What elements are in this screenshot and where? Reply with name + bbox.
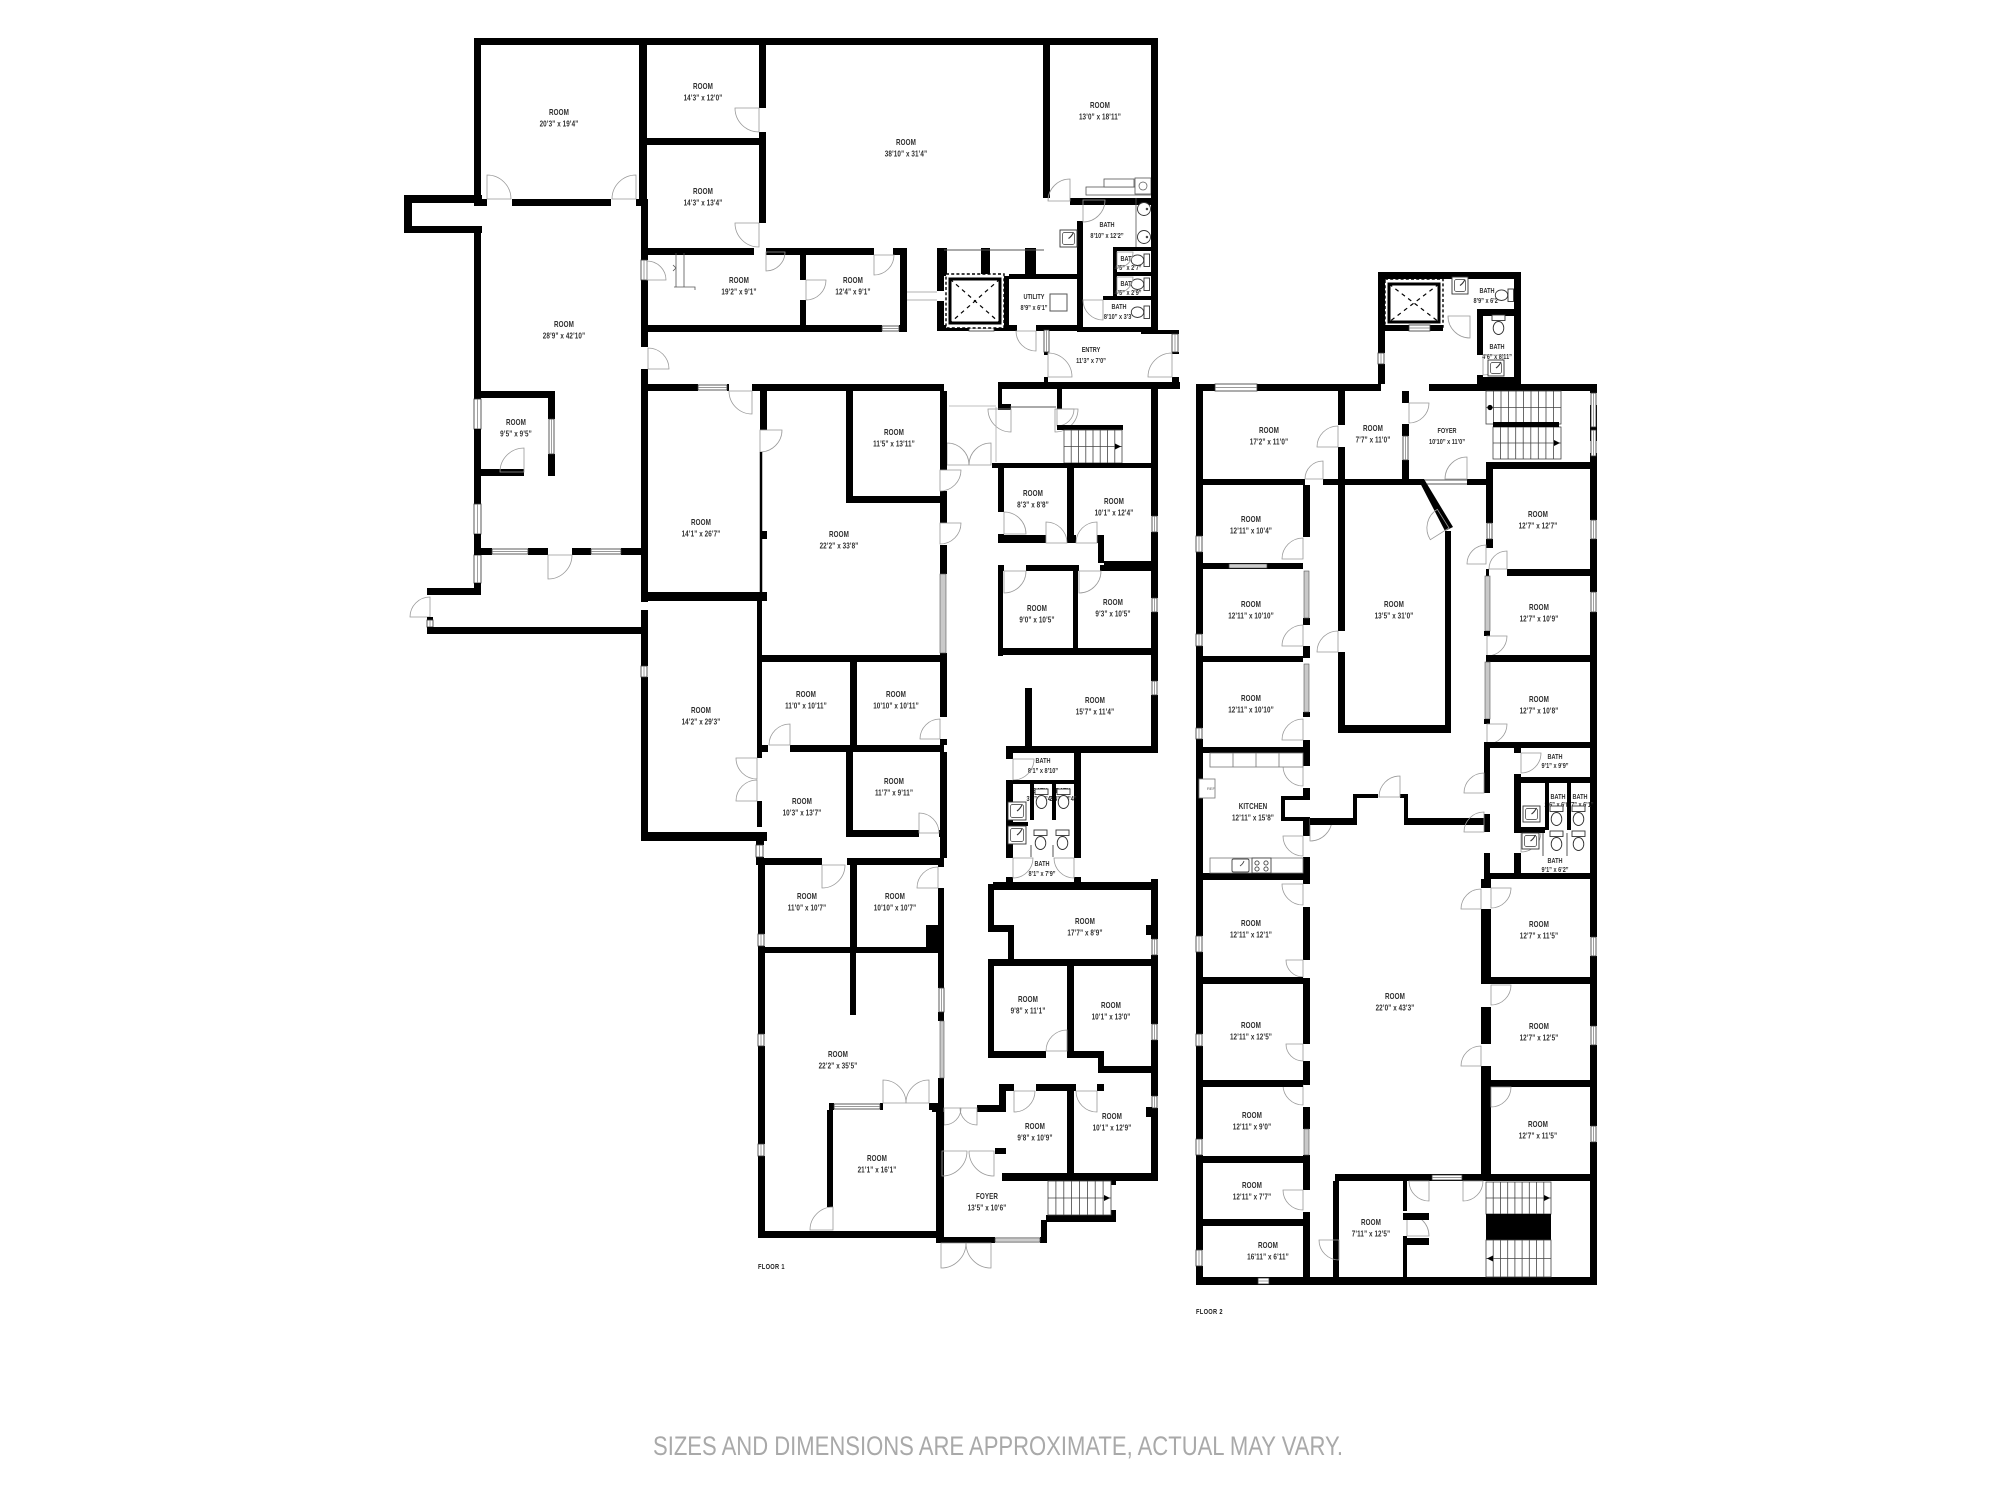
svg-text:ROOM: ROOM	[506, 417, 526, 427]
svg-text:ROOM: ROOM	[693, 186, 713, 196]
svg-text:ROOM: ROOM	[1027, 603, 1047, 613]
svg-text:16’11” x 6’11”: 16’11” x 6’11”	[1247, 1252, 1289, 1262]
svg-text:17’7” x 8’9”: 17’7” x 8’9”	[1067, 928, 1102, 938]
svg-text:ROOM: ROOM	[828, 1049, 848, 1059]
svg-text:11’0” x 10’7”: 11’0” x 10’7”	[788, 903, 827, 913]
svg-text:SIZES AND DIMENSIONS ARE APPRO: SIZES AND DIMENSIONS ARE APPROXIMATE, AC…	[653, 1431, 1343, 1461]
svg-text:BATH: BATH	[1548, 857, 1563, 865]
svg-text:13’5” x 10’6”: 13’5” x 10’6”	[968, 1203, 1007, 1213]
svg-text:ROOM: ROOM	[1241, 918, 1261, 928]
svg-text:14’1” x 26’7”: 14’1” x 26’7”	[682, 529, 721, 539]
svg-text:12’7” x 10’9”: 12’7” x 10’9”	[1520, 614, 1559, 624]
svg-text:38’10” x 31’4”: 38’10” x 31’4”	[885, 149, 928, 159]
svg-text:9’3” x 10’5”: 9’3” x 10’5”	[1095, 609, 1130, 619]
svg-text:ROOM: ROOM	[1385, 991, 1405, 1001]
svg-text:ROOM: ROOM	[1025, 1121, 1045, 1131]
svg-text:17’2” x 11’0”: 17’2” x 11’0”	[1250, 437, 1289, 447]
svg-text:BATH: BATH	[1548, 753, 1563, 761]
svg-text:12’11” x 10’4”: 12’11” x 10’4”	[1230, 526, 1272, 536]
svg-text:ROOM: ROOM	[1529, 694, 1549, 704]
svg-text:ROOM: ROOM	[1241, 693, 1261, 703]
svg-text:13’0” x 18’11”: 13’0” x 18’11”	[1079, 112, 1121, 122]
svg-text:12’7” x 11’5”: 12’7” x 11’5”	[1520, 931, 1559, 941]
svg-text:ROOM: ROOM	[554, 319, 574, 329]
svg-text:12’11” x 12’1”: 12’11” x 12’1”	[1230, 930, 1272, 940]
svg-text:10’10” x 11’0”: 10’10” x 11’0”	[1429, 438, 1465, 446]
svg-text:ROOM: ROOM	[693, 81, 713, 91]
svg-text:BATH: BATH	[1036, 757, 1051, 765]
svg-text:ROOM: ROOM	[1242, 1110, 1262, 1120]
svg-text:12’7” x 11’5”: 12’7” x 11’5”	[1519, 1131, 1558, 1141]
svg-text:9’1” x 9’9”: 9’1” x 9’9”	[1541, 762, 1568, 770]
svg-text:10’3” x 13’7”: 10’3” x 13’7”	[783, 808, 822, 818]
svg-text:ROOM: ROOM	[792, 796, 812, 806]
svg-text:12’7” x 12’7”: 12’7” x 12’7”	[1519, 521, 1558, 531]
svg-text:BATH: BATH	[1112, 303, 1127, 311]
svg-text:22’2” x 35’5”: 22’2” x 35’5”	[819, 1061, 858, 1071]
svg-text:ROOM: ROOM	[886, 689, 906, 699]
svg-text:10’1” x 12’4”: 10’1” x 12’4”	[1095, 508, 1134, 518]
svg-text:12’11” x 7’7”: 12’11” x 7’7”	[1233, 1192, 1272, 1202]
svg-text:14’2” x 29’3”: 14’2” x 29’3”	[682, 717, 721, 727]
svg-text:ROOM: ROOM	[884, 427, 904, 437]
svg-text:ROOM: ROOM	[549, 107, 569, 117]
svg-text:BATH: BATH	[1490, 343, 1505, 351]
svg-text:UTILITY: UTILITY	[1024, 293, 1045, 301]
svg-text:8’9” x 6’1”: 8’9” x 6’1”	[1020, 304, 1047, 312]
svg-text:FOYER: FOYER	[1437, 427, 1456, 435]
svg-text:ROOM: ROOM	[1529, 919, 1549, 929]
svg-text:ROOM: ROOM	[885, 891, 905, 901]
svg-text:ROOM: ROOM	[1529, 602, 1549, 612]
svg-text:ROOM: ROOM	[1529, 1021, 1549, 1031]
svg-text:ROOM: ROOM	[896, 137, 916, 147]
svg-text:13’5” x 31’0”: 13’5” x 31’0”	[1375, 611, 1414, 621]
svg-text:ROOM: ROOM	[829, 529, 849, 539]
svg-text:9’0” x 10’5”: 9’0” x 10’5”	[1019, 615, 1054, 625]
svg-text:ROOM: ROOM	[691, 705, 711, 715]
svg-text:19’2” x 9’1”: 19’2” x 9’1”	[721, 287, 756, 297]
svg-text:10’1” x 13’0”: 10’1” x 13’0”	[1092, 1012, 1131, 1022]
svg-text:12’4” x 9’1”: 12’4” x 9’1”	[835, 287, 870, 297]
svg-text:ENTRY: ENTRY	[1082, 346, 1101, 354]
svg-text:9’8” x 10’9”: 9’8” x 10’9”	[1017, 1133, 1052, 1143]
svg-text:ROOM: ROOM	[1242, 1180, 1262, 1190]
svg-text:10’10” x 10’7”: 10’10” x 10’7”	[874, 903, 917, 913]
svg-text:FLOOR 1: FLOOR 1	[758, 1263, 785, 1271]
svg-text:FOYER: FOYER	[976, 1191, 999, 1201]
svg-text:ROOM: ROOM	[797, 891, 817, 901]
svg-text:ROOM: ROOM	[1241, 1020, 1261, 1030]
svg-text:ROOM: ROOM	[843, 275, 863, 285]
svg-text:12’7” x 10’8”: 12’7” x 10’8”	[1520, 706, 1559, 716]
svg-text:BATH: BATH	[1551, 793, 1566, 801]
svg-text:ROOM: ROOM	[1018, 994, 1038, 1004]
svg-text:14’3” x 13’4”: 14’3” x 13’4”	[684, 198, 723, 208]
svg-text:BATH: BATH	[1480, 287, 1495, 295]
svg-text:12’7” x 12’5”: 12’7” x 12’5”	[1520, 1033, 1559, 1043]
svg-text:BATH: BATH	[1573, 793, 1588, 801]
svg-text:REF: REF	[1207, 786, 1216, 791]
svg-text:ROOM: ROOM	[1361, 1217, 1381, 1227]
svg-text:28’9” x 42’10”: 28’9” x 42’10”	[543, 331, 586, 341]
svg-text:15’7” x 11’4”: 15’7” x 11’4”	[1076, 707, 1115, 717]
svg-text:ROOM: ROOM	[1085, 695, 1105, 705]
svg-text:ROOM: ROOM	[1241, 514, 1261, 524]
svg-text:BATH: BATH	[1100, 221, 1115, 229]
svg-text:12’11” x 10’10”: 12’11” x 10’10”	[1228, 705, 1274, 715]
svg-text:12’11” x 12’5”: 12’11” x 12’5”	[1230, 1032, 1272, 1042]
svg-text:FLOOR 2: FLOOR 2	[1196, 1308, 1223, 1316]
svg-text:12’11” x 10’10”: 12’11” x 10’10”	[1228, 611, 1274, 621]
svg-text:ROOM: ROOM	[1259, 425, 1279, 435]
svg-text:11’7” x 9’11”: 11’7” x 9’11”	[875, 788, 913, 798]
svg-text:ROOM: ROOM	[1101, 1000, 1121, 1010]
svg-text:KITCHEN: KITCHEN	[1239, 801, 1268, 811]
svg-text:ROOM: ROOM	[884, 776, 904, 786]
svg-text:ROOM: ROOM	[1023, 488, 1043, 498]
svg-text:ROOM: ROOM	[1104, 496, 1124, 506]
svg-text:11’0” x 10’11”: 11’0” x 10’11”	[785, 701, 827, 711]
svg-text:ROOM: ROOM	[1528, 1119, 1548, 1129]
svg-text:8’10” x 12’2”: 8’10” x 12’2”	[1090, 232, 1123, 240]
svg-text:12’11” x 9’0”: 12’11” x 9’0”	[1233, 1122, 1272, 1132]
svg-text:ROOM: ROOM	[1384, 599, 1404, 609]
svg-text:22’0” x 43’3”: 22’0” x 43’3”	[1376, 1003, 1415, 1013]
svg-text:ROOM: ROOM	[867, 1153, 887, 1163]
svg-text:ROOM: ROOM	[691, 517, 711, 527]
svg-text:9’8” x 11’1”: 9’8” x 11’1”	[1011, 1006, 1046, 1016]
svg-text:ROOM: ROOM	[1241, 599, 1261, 609]
svg-text:ROOM: ROOM	[1103, 597, 1123, 607]
svg-text:7’7” x 11’0”: 7’7” x 11’0”	[1356, 435, 1391, 445]
svg-text:ROOM: ROOM	[1075, 916, 1095, 926]
svg-text:21’1” x 16’1”: 21’1” x 16’1”	[858, 1165, 897, 1175]
svg-text:11’3” x 7’0”: 11’3” x 7’0”	[1076, 357, 1106, 365]
svg-text:10’10” x 10’11”: 10’10” x 10’11”	[873, 701, 919, 711]
svg-text:ROOM: ROOM	[796, 689, 816, 699]
svg-text:8’1” x 7’9”: 8’1” x 7’9”	[1028, 870, 1055, 878]
svg-text:ROOM: ROOM	[1258, 1240, 1278, 1250]
svg-text:11’5” x 13’11”: 11’5” x 13’11”	[873, 439, 915, 449]
svg-text:ROOM: ROOM	[729, 275, 749, 285]
svg-text:10’1” x 12’9”: 10’1” x 12’9”	[1093, 1123, 1132, 1133]
svg-text:12’11” x 15’8”: 12’11” x 15’8”	[1232, 813, 1274, 823]
svg-text:9’5” x 9’5”: 9’5” x 9’5”	[500, 429, 532, 439]
svg-text:BATH: BATH	[1035, 860, 1050, 868]
svg-text:8’10” x 3’3”: 8’10” x 3’3”	[1104, 313, 1134, 321]
svg-text:7’11” x 12’5”: 7’11” x 12’5”	[1352, 1229, 1391, 1239]
svg-text:8’1” x 8’10”: 8’1” x 8’10”	[1028, 767, 1058, 775]
svg-text:14’3” x 12’0”: 14’3” x 12’0”	[684, 93, 723, 103]
svg-text:ROOM: ROOM	[1528, 509, 1548, 519]
svg-text:22’2” x 33’8”: 22’2” x 33’8”	[820, 541, 859, 551]
svg-text:20’3” x 19’4”: 20’3” x 19’4”	[540, 119, 579, 129]
svg-text:8’3” x 8’8”: 8’3” x 8’8”	[1017, 500, 1049, 510]
svg-text:ROOM: ROOM	[1102, 1111, 1122, 1121]
svg-text:ROOM: ROOM	[1090, 100, 1110, 110]
svg-text:ROOM: ROOM	[1363, 423, 1383, 433]
